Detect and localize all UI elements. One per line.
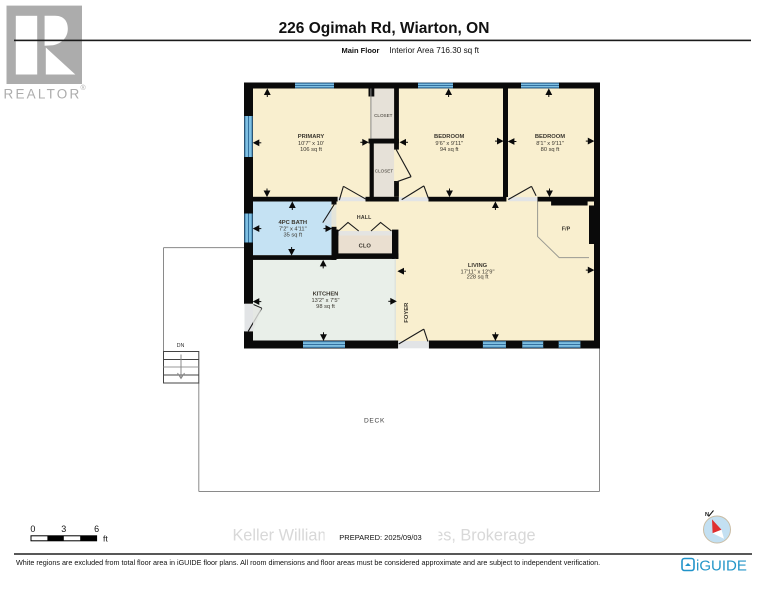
svg-text:REALTOR: REALTOR xyxy=(4,87,82,102)
svg-text:LIVING: LIVING xyxy=(468,263,488,269)
svg-text:3: 3 xyxy=(61,524,66,534)
svg-text:HALL: HALL xyxy=(357,215,372,221)
svg-text:White regions are excluded fro: White regions are excluded from total fl… xyxy=(16,558,600,567)
svg-text:80 sq ft: 80 sq ft xyxy=(541,147,560,153)
svg-text:6: 6 xyxy=(94,524,99,534)
svg-text:BEDROOM: BEDROOM xyxy=(535,134,565,140)
svg-text:Main Floor: Main Floor xyxy=(342,46,380,55)
svg-text:N: N xyxy=(705,512,709,518)
svg-text:4PC BATH: 4PC BATH xyxy=(279,220,308,226)
svg-text:CLO: CLO xyxy=(359,243,372,249)
svg-text:CLOSET: CLOSET xyxy=(374,113,393,118)
svg-text:0: 0 xyxy=(30,524,35,534)
svg-text:98 sq ft: 98 sq ft xyxy=(316,304,335,310)
svg-text:KITCHEN: KITCHEN xyxy=(313,291,339,297)
svg-text:F/P: F/P xyxy=(562,226,571,232)
svg-text:PREPARED: 2025/09/03: PREPARED: 2025/09/03 xyxy=(339,533,421,542)
svg-text:CLOSET: CLOSET xyxy=(375,168,394,173)
svg-text:FOYER: FOYER xyxy=(404,302,410,323)
svg-text:DECK: DECK xyxy=(364,418,385,425)
svg-text:228 sq ft: 228 sq ft xyxy=(467,275,489,281)
svg-text:35 sq ft: 35 sq ft xyxy=(283,233,302,239)
svg-text:®: ® xyxy=(81,84,87,92)
svg-text:226 Ogimah Rd, Wiarton, ON: 226 Ogimah Rd, Wiarton, ON xyxy=(279,20,490,37)
svg-text:Interior Area 716.30 sq ft: Interior Area 716.30 sq ft xyxy=(389,46,479,55)
svg-text:PRIMARY: PRIMARY xyxy=(298,134,325,140)
svg-text:94 sq ft: 94 sq ft xyxy=(440,147,459,153)
svg-text:DN: DN xyxy=(177,343,185,349)
svg-text:BEDROOM: BEDROOM xyxy=(434,134,464,140)
svg-text:iGUIDE: iGUIDE xyxy=(696,557,747,574)
svg-text:106 sq ft: 106 sq ft xyxy=(300,147,322,153)
svg-text:ft: ft xyxy=(103,534,108,544)
